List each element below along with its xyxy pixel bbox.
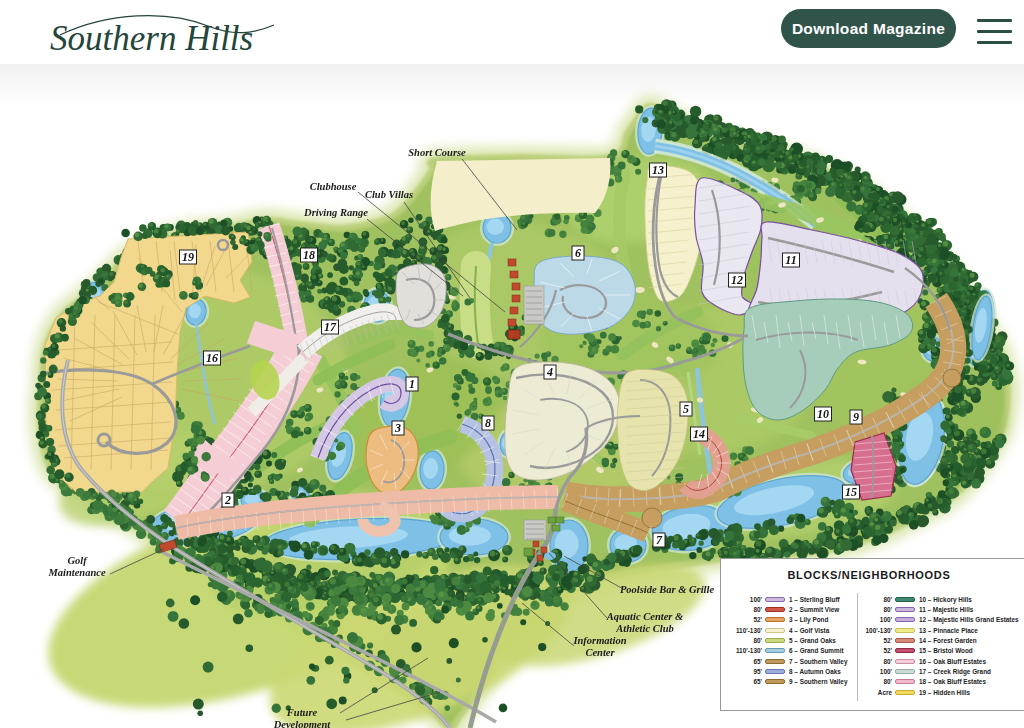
svg-text:Short Course: Short Course xyxy=(408,147,466,158)
svg-text:Development: Development xyxy=(273,719,332,728)
svg-text:Clubhouse: Clubhouse xyxy=(310,181,357,192)
svg-text:Driving Range: Driving Range xyxy=(303,207,368,218)
svg-text:Athletic Club: Athletic Club xyxy=(615,623,673,634)
svg-text:4: 4 xyxy=(546,365,553,379)
svg-text:17: 17 xyxy=(324,320,337,334)
svg-text:14: 14 xyxy=(693,427,705,441)
svg-text:6: 6 xyxy=(575,246,581,260)
svg-text:5: 5 xyxy=(683,402,689,416)
svg-text:Center: Center xyxy=(585,647,615,658)
svg-text:15: 15 xyxy=(845,485,857,499)
svg-text:18: 18 xyxy=(303,248,315,262)
svg-text:Maintenance: Maintenance xyxy=(47,567,106,578)
svg-text:Club Villas: Club Villas xyxy=(365,189,413,200)
svg-text:Information: Information xyxy=(572,635,626,646)
svg-text:11: 11 xyxy=(785,253,796,267)
svg-text:9: 9 xyxy=(853,410,859,424)
svg-text:16: 16 xyxy=(206,351,218,365)
svg-text:3: 3 xyxy=(394,421,401,435)
svg-text:Golf: Golf xyxy=(67,555,88,566)
svg-text:1: 1 xyxy=(409,377,415,391)
svg-text:2: 2 xyxy=(224,493,231,507)
svg-text:10: 10 xyxy=(817,407,829,421)
svg-text:8: 8 xyxy=(485,416,491,430)
svg-text:12: 12 xyxy=(731,273,743,287)
svg-text:7: 7 xyxy=(656,533,663,547)
svg-text:Poolside Bar & Grille: Poolside Bar & Grille xyxy=(620,584,715,595)
svg-text:Future: Future xyxy=(286,707,318,718)
svg-text:19: 19 xyxy=(182,250,194,264)
svg-text:Southern Hills: Southern Hills xyxy=(50,19,253,58)
svg-text:Aquatic Center &: Aquatic Center & xyxy=(606,611,684,622)
svg-text:13: 13 xyxy=(652,163,664,177)
